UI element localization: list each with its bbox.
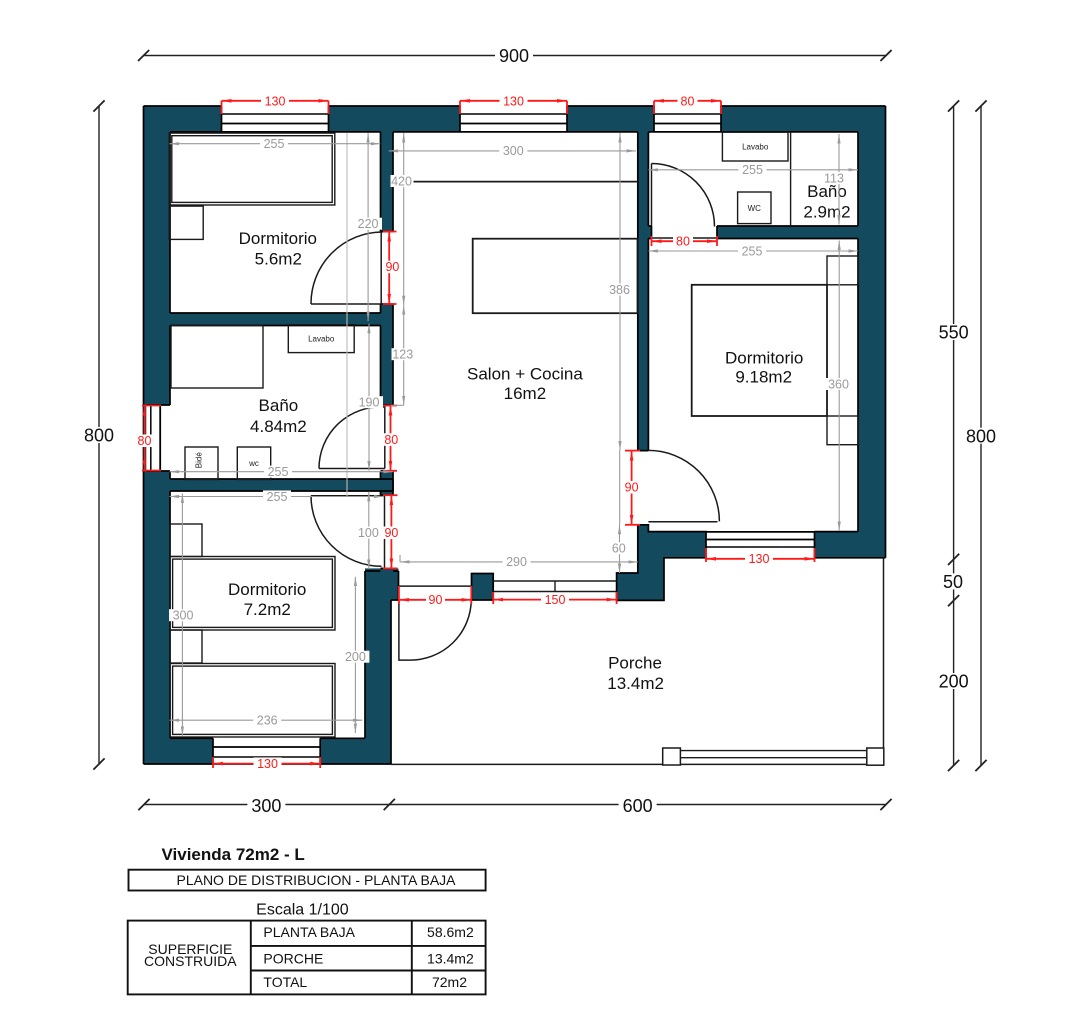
svg-text:Lavabo: Lavabo	[308, 335, 335, 344]
svg-text:80: 80	[681, 94, 695, 108]
svg-text:90: 90	[429, 593, 443, 607]
svg-text:Lavabo: Lavabo	[742, 143, 769, 152]
svg-text:Baño: Baño	[259, 396, 299, 415]
svg-text:CONSTRUIDA: CONSTRUIDA	[144, 953, 237, 969]
svg-text:190: 190	[359, 396, 380, 410]
svg-text:255: 255	[267, 490, 288, 504]
svg-text:255: 255	[742, 163, 763, 177]
svg-text:600: 600	[623, 796, 653, 816]
svg-text:255: 255	[268, 465, 289, 479]
svg-text:PLANO DE DISTRIBUCION - PLANTA: PLANO DE DISTRIBUCION - PLANTA BAJA	[176, 872, 456, 888]
svg-text:290: 290	[506, 555, 527, 569]
svg-text:2.9m2: 2.9m2	[803, 202, 850, 221]
svg-text:5.6m2: 5.6m2	[255, 250, 302, 269]
svg-text:113: 113	[824, 171, 844, 185]
svg-text:58.6m2: 58.6m2	[427, 924, 474, 940]
svg-text:130: 130	[503, 94, 524, 108]
svg-text:PORCHE: PORCHE	[263, 950, 323, 966]
svg-text:50: 50	[943, 572, 963, 592]
svg-text:800: 800	[966, 426, 996, 446]
svg-text:420: 420	[391, 174, 412, 188]
svg-text:900: 900	[499, 46, 529, 66]
svg-text:236: 236	[257, 714, 278, 728]
svg-text:90: 90	[385, 260, 399, 274]
svg-text:90: 90	[625, 481, 639, 495]
svg-text:220: 220	[358, 217, 379, 231]
svg-text:80: 80	[138, 434, 152, 448]
svg-text:386: 386	[609, 283, 630, 297]
svg-text:550: 550	[939, 323, 969, 343]
svg-text:PLANTA BAJA: PLANTA BAJA	[263, 924, 355, 940]
svg-text:90: 90	[384, 526, 398, 540]
svg-text:300: 300	[251, 796, 281, 816]
svg-text:300: 300	[173, 609, 194, 623]
svg-text:WC: WC	[748, 204, 762, 213]
svg-text:Vivienda 72m2 - L: Vivienda 72m2 - L	[162, 845, 305, 864]
svg-text:13.4m2: 13.4m2	[427, 950, 474, 966]
svg-text:130: 130	[749, 552, 770, 566]
svg-text:130: 130	[265, 94, 286, 108]
svg-text:Dormitorio: Dormitorio	[228, 580, 306, 599]
svg-text:300: 300	[503, 144, 524, 158]
svg-text:80: 80	[676, 235, 690, 249]
svg-text:4.84m2: 4.84m2	[250, 417, 307, 436]
svg-text:Salon + Cocina: Salon + Cocina	[467, 364, 583, 383]
svg-text:150: 150	[545, 593, 566, 607]
svg-text:Porche: Porche	[608, 653, 662, 672]
svg-text:Dormitorio: Dormitorio	[239, 229, 317, 248]
svg-text:200: 200	[939, 672, 969, 692]
svg-text:Escala 1/100: Escala 1/100	[256, 902, 349, 919]
svg-text:255: 255	[742, 244, 763, 258]
svg-text:130: 130	[257, 757, 278, 771]
svg-text:wc: wc	[248, 459, 259, 468]
svg-text:TOTAL: TOTAL	[263, 974, 307, 990]
svg-text:72m2: 72m2	[432, 974, 467, 990]
svg-text:80: 80	[384, 433, 398, 447]
svg-text:Bidé: Bidé	[195, 452, 204, 469]
svg-text:7.2m2: 7.2m2	[244, 600, 291, 619]
svg-text:123: 123	[392, 348, 413, 362]
svg-text:200: 200	[345, 650, 366, 664]
svg-text:13.4m2: 13.4m2	[607, 674, 664, 693]
svg-text:255: 255	[264, 137, 285, 151]
svg-text:800: 800	[84, 426, 114, 446]
svg-text:9.18m2: 9.18m2	[735, 368, 792, 387]
svg-text:Dormitorio: Dormitorio	[725, 349, 803, 368]
svg-text:360: 360	[828, 377, 849, 391]
svg-text:100: 100	[358, 526, 379, 540]
svg-text:16m2: 16m2	[504, 384, 547, 403]
svg-text:60: 60	[612, 542, 626, 556]
